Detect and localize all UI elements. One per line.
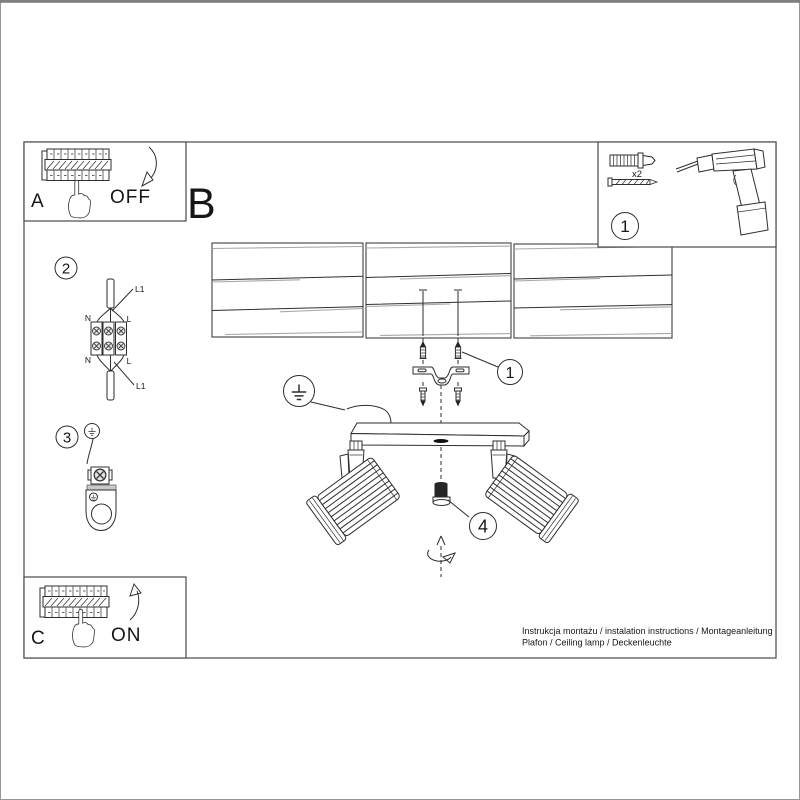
panel-a: A OFF	[24, 142, 186, 221]
earth-symbol-main	[284, 376, 346, 411]
on-label: ON	[111, 625, 142, 646]
step-1-callout: 1	[462, 352, 523, 385]
step-1-number: 1	[506, 365, 515, 382]
ground-step: 3	[56, 424, 116, 531]
step-3-number: 3	[63, 430, 71, 447]
label-n-top: N	[85, 313, 91, 323]
tools-panel: x2 1	[598, 142, 776, 247]
instruction-sheet: 1	[0, 0, 800, 800]
step-2-number: 2	[62, 261, 70, 278]
fusebox-icon	[40, 586, 109, 618]
rotation-arrow-icon	[428, 536, 455, 577]
off-label: OFF	[110, 187, 151, 208]
panel-a-letter: A	[31, 191, 44, 212]
label-n-bottom: N	[85, 355, 91, 365]
label-l-bottom: L	[127, 356, 132, 366]
screw-icon	[608, 178, 657, 186]
image-border	[0, 1, 800, 800]
plug-quantity-label: x2	[632, 169, 642, 180]
panel-c: C ON	[24, 577, 186, 658]
footer-line1: Instrukcja montażu / instalation instruc…	[522, 626, 773, 636]
power-cable	[347, 405, 391, 424]
label-l1-top: L1	[135, 284, 145, 294]
step-4-number: 4	[478, 517, 488, 537]
adjust-knob	[433, 482, 450, 506]
tools-step-number: 1	[620, 217, 629, 236]
fusebox-icon	[42, 149, 111, 181]
ground-wire	[87, 439, 93, 464]
footer-line2: Plafon / Ceiling lamp / Deckenleuchte	[522, 638, 672, 648]
cable-top	[107, 279, 114, 308]
label-l1-bottom: L1	[136, 381, 146, 391]
ceiling-illustration	[212, 243, 672, 338]
label-l-top: L	[127, 314, 132, 324]
tools-step-badge: 1	[612, 213, 639, 240]
mounting-bracket	[413, 367, 469, 385]
bracket-ground-lug	[86, 467, 116, 531]
step-4-callout: 4	[448, 500, 497, 540]
earth-symbol-icon	[85, 424, 100, 439]
terminal-block	[91, 322, 127, 355]
cable-bottom	[107, 371, 114, 400]
panel-c-letter: C	[31, 628, 45, 649]
section-letter-b: B	[187, 180, 216, 228]
wiring-step: 2 L1 N L N L L1	[55, 257, 146, 400]
footer-text: Instrukcja montażu / instalation instruc…	[522, 626, 773, 648]
